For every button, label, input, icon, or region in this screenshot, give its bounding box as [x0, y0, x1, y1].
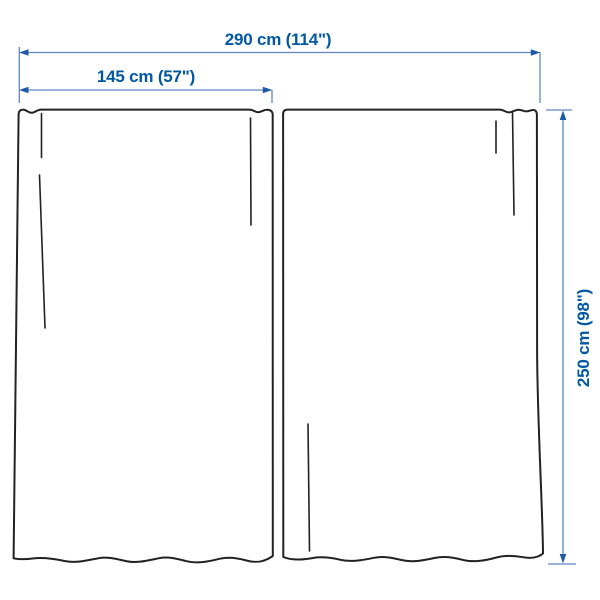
arrow-left-icon: [19, 49, 29, 56]
curtain-panel-right-outline: [283, 110, 543, 562]
total-width-label: 290 cm (114"): [225, 30, 332, 49]
curtain-dimension-svg: 290 cm (114") 145 cm (57") 250 cm (98"): [0, 0, 600, 600]
height-dimension: 250 cm (98"): [546, 110, 593, 564]
panel-width-label: 145 cm (57"): [97, 67, 195, 86]
arrow-up-icon: [560, 111, 567, 121]
arrow-left-icon: [19, 87, 29, 94]
arrow-right-icon: [531, 49, 541, 56]
panel-width-dimension: 145 cm (57"): [19, 67, 272, 103]
product-dimension-diagram: 290 cm (114") 145 cm (57") 250 cm (98"): [0, 0, 600, 600]
curtain-panel-left-outline: [14, 110, 273, 563]
curtain-panel-right: [283, 110, 543, 562]
height-label: 250 cm (98"): [574, 289, 593, 387]
fold-line: [251, 118, 252, 225]
curtain-panel-left: [14, 110, 273, 563]
arrow-down-icon: [560, 554, 567, 564]
arrow-right-icon: [263, 87, 273, 94]
